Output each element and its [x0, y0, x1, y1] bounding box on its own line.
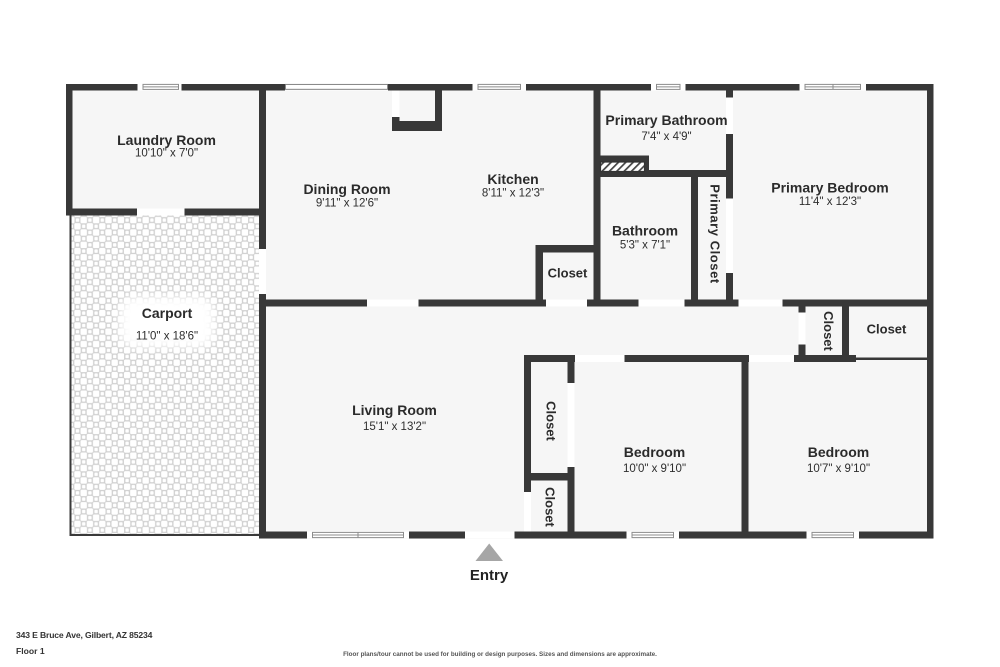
svg-text:9'11" x 12'6": 9'11" x 12'6": [316, 198, 378, 210]
svg-text:8'11" x 12'3": 8'11" x 12'3": [482, 188, 544, 200]
svg-text:343 E Bruce Ave, Gilbert, AZ 8: 343 E Bruce Ave, Gilbert, AZ 85234: [16, 630, 153, 640]
svg-text:Floor 1: Floor 1: [16, 646, 45, 656]
svg-text:Bathroom: Bathroom: [612, 223, 678, 239]
svg-text:Living Room: Living Room: [352, 402, 437, 418]
svg-text:11'4" x 12'3": 11'4" x 12'3": [799, 196, 861, 208]
svg-text:Closet: Closet: [548, 266, 588, 281]
svg-text:Primary Bedroom: Primary Bedroom: [771, 180, 888, 196]
svg-text:Entry: Entry: [470, 567, 509, 584]
svg-text:Laundry Room: Laundry Room: [117, 132, 216, 148]
svg-text:Primary Closet: Primary Closet: [708, 184, 723, 284]
svg-text:11'0" x 18'6": 11'0" x 18'6": [136, 331, 198, 343]
svg-text:Primary Bathroom: Primary Bathroom: [605, 112, 727, 128]
svg-text:10'10" x 7'0": 10'10" x 7'0": [135, 148, 198, 160]
svg-text:Closet: Closet: [821, 311, 836, 351]
svg-text:Bedroom: Bedroom: [624, 444, 685, 460]
svg-text:Dining Room: Dining Room: [303, 181, 390, 197]
svg-text:10'7" x 9'10": 10'7" x 9'10": [807, 463, 870, 475]
svg-text:Bedroom: Bedroom: [808, 444, 869, 460]
svg-text:Floor plans/tour cannot be use: Floor plans/tour cannot be used for buil…: [343, 651, 657, 658]
svg-text:Closet: Closet: [867, 322, 907, 337]
svg-text:Carport: Carport: [142, 305, 193, 321]
svg-text:10'0" x 9'10": 10'0" x 9'10": [623, 463, 686, 475]
svg-text:Closet: Closet: [543, 487, 558, 527]
svg-text:Kitchen: Kitchen: [487, 171, 538, 187]
svg-text:Closet: Closet: [544, 401, 559, 441]
svg-text:5'3" x 7'1": 5'3" x 7'1": [620, 240, 670, 252]
svg-text:7'4" x 4'9": 7'4" x 4'9": [641, 131, 691, 143]
svg-text:15'1" x 13'2": 15'1" x 13'2": [363, 421, 426, 433]
